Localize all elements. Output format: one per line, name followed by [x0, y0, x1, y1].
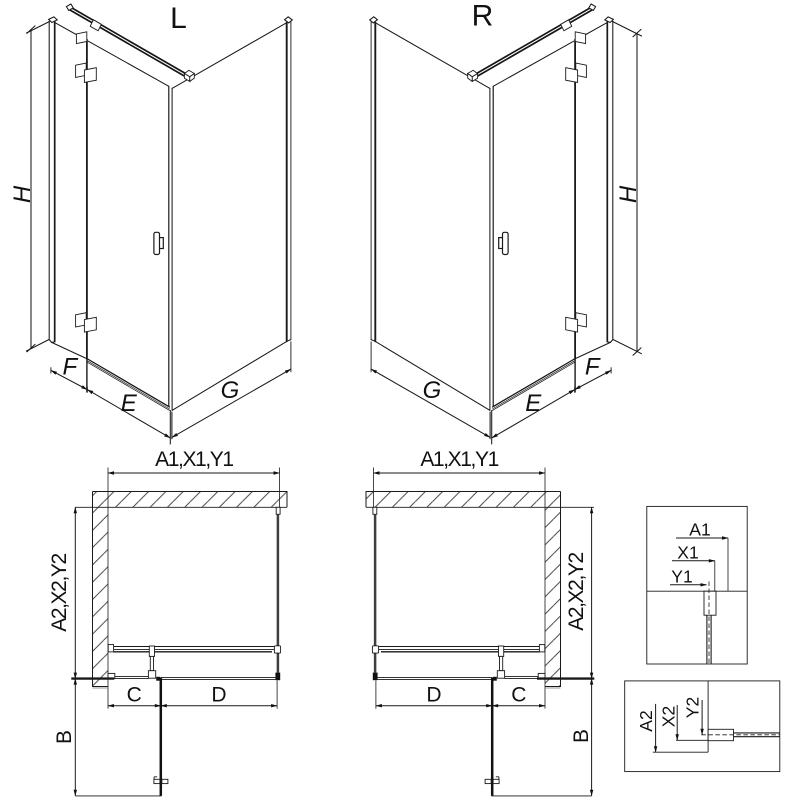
svg-text:G: G	[423, 377, 442, 404]
svg-text:F: F	[62, 354, 78, 381]
svg-text:D: D	[426, 684, 441, 707]
svg-text:E: E	[121, 390, 138, 417]
svg-text:L: L	[170, 2, 187, 35]
svg-text:C: C	[511, 684, 526, 707]
svg-text:B: B	[570, 729, 593, 743]
svg-text:D: D	[211, 684, 226, 707]
svg-text:B: B	[53, 730, 76, 744]
svg-text:A2: A2	[636, 710, 656, 731]
svg-text:A1: A1	[689, 520, 710, 540]
svg-text:H: H	[9, 185, 36, 203]
svg-text:A2,X2,Y2: A2,X2,Y2	[565, 553, 588, 631]
svg-text:X1: X1	[677, 542, 698, 562]
svg-text:H: H	[615, 185, 642, 203]
svg-text:C: C	[127, 684, 142, 707]
svg-text:X2: X2	[659, 706, 679, 727]
svg-text:A1,X1,Y1: A1,X1,Y1	[155, 448, 233, 471]
svg-text:Y1: Y1	[671, 566, 692, 586]
svg-text:F: F	[585, 354, 601, 381]
svg-text:G: G	[221, 377, 240, 404]
svg-text:E: E	[525, 390, 542, 417]
svg-text:R: R	[472, 0, 494, 33]
svg-text:A1,X1,Y1: A1,X1,Y1	[420, 448, 498, 471]
svg-text:Y2: Y2	[683, 697, 703, 718]
svg-text:A2,X2,Y2: A2,X2,Y2	[48, 554, 71, 632]
